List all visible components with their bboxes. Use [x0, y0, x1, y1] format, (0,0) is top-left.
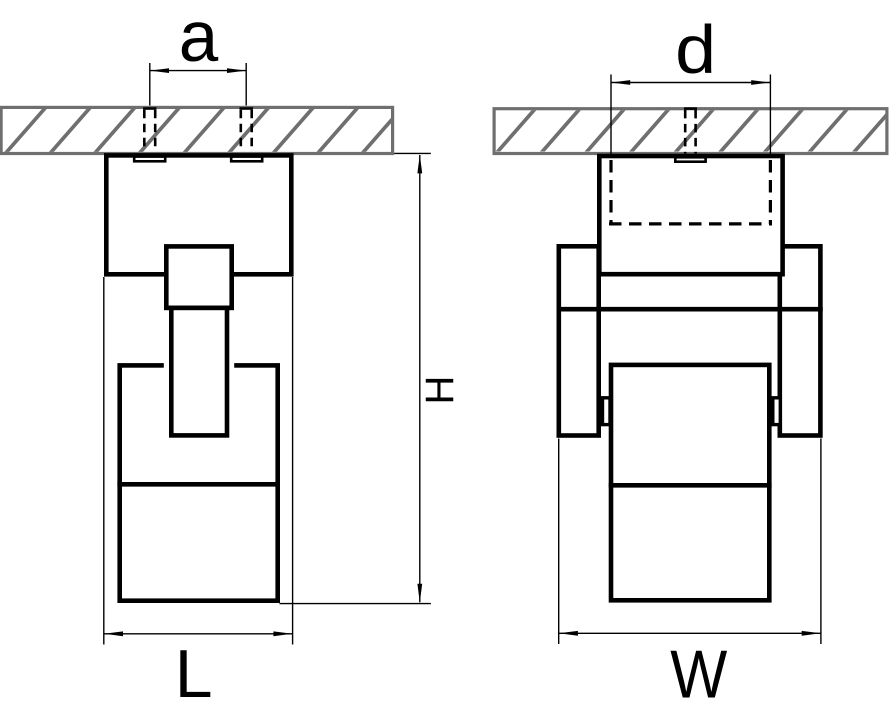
svg-text:a: a	[179, 0, 219, 77]
svg-text:W: W	[670, 637, 727, 713]
svg-text:d: d	[675, 12, 716, 88]
svg-text:H: H	[418, 376, 462, 405]
svg-text:L: L	[175, 636, 213, 712]
